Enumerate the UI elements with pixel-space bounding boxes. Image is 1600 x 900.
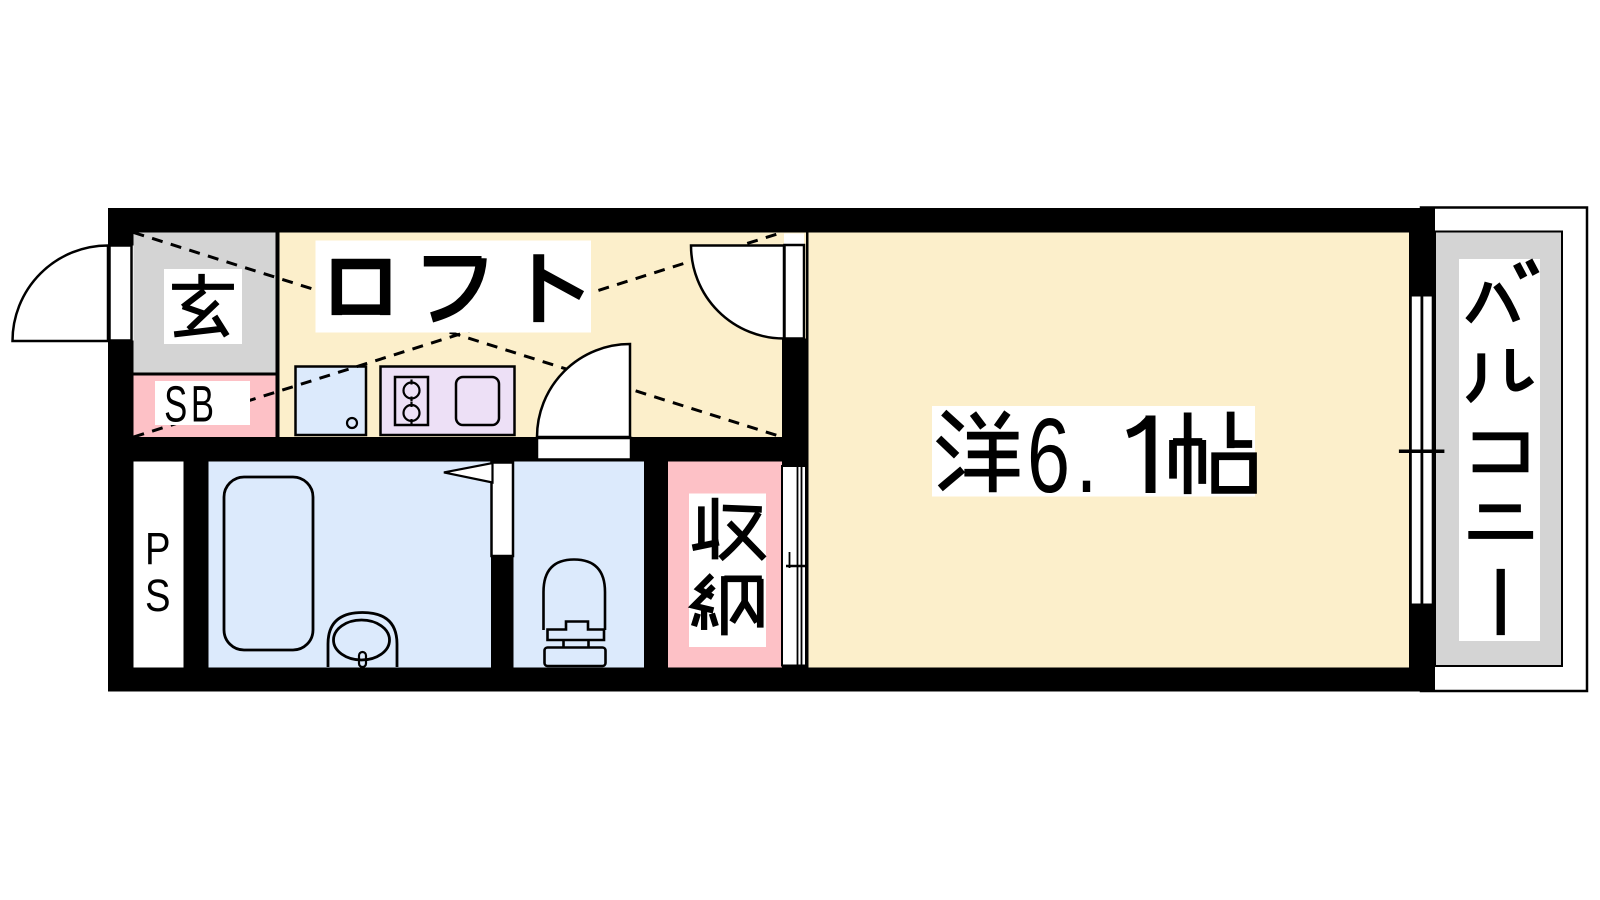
svg-text:.: . (1076, 396, 1097, 515)
svg-text:6: 6 (1027, 396, 1070, 515)
svg-text:P: P (145, 523, 171, 574)
svg-text:B: B (191, 377, 214, 433)
svg-text:S: S (145, 570, 171, 621)
svg-text:S: S (164, 377, 187, 433)
